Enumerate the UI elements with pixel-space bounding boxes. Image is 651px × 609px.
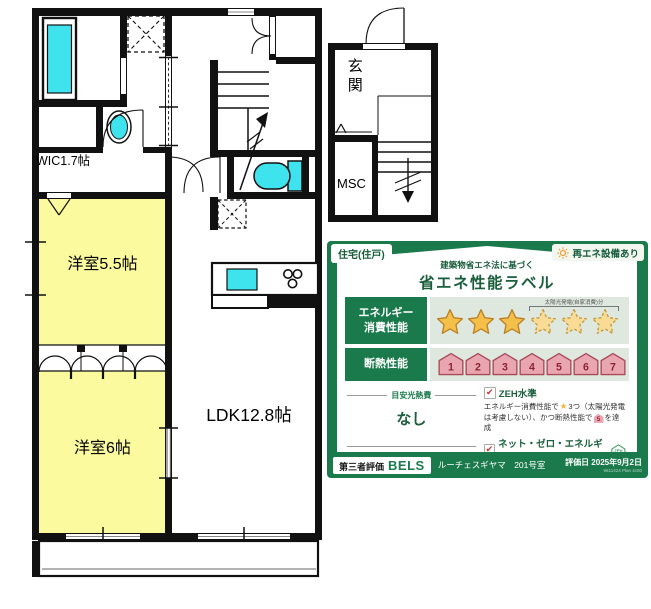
kitchen-sink-icon	[227, 269, 257, 290]
bedroom2-label: 洋室6帖	[39, 441, 166, 458]
energy-consumption-row: エネルギー 消費性能 太陽光発電(自家消費)分	[345, 297, 629, 344]
insulation-house-icon: 2	[465, 352, 491, 376]
bedroom1-label: 洋室5.5帖	[39, 257, 166, 274]
msc-label: MSC	[337, 177, 366, 191]
star-icon: ★	[559, 401, 569, 411]
energy-label-panel: 住宅(住戸) 再エネ設備あり 建築物省エネ法に基づく 省エネ性能ラベル エネルギ…	[327, 241, 648, 478]
cert-label: 第三者評価	[339, 460, 384, 473]
label-footer: 第三者評価 BELS ルーチェスギヤマ 201号室 評価日 2025年9月2日 …	[327, 452, 648, 478]
balcony	[39, 541, 318, 576]
ldk-dashed-icon	[218, 200, 246, 228]
insulation-label: 断熱性能	[345, 348, 427, 381]
renewable-badge-label: 再エネ設備あり	[572, 246, 639, 260]
energy-label-line1: エネルギー	[359, 306, 414, 320]
zeh-desc: エネルギー消費性能で★3つ（太陽光発電は考慮しない）、かつ断熱性能で5を達成	[484, 401, 627, 434]
double-door-icon	[252, 18, 271, 54]
entrance-door-icon	[366, 8, 404, 44]
step-marks	[335, 124, 372, 133]
cost-value: なし	[347, 408, 476, 429]
solar-note-bracket: 太陽光発電(自家消費)分	[529, 298, 619, 311]
insulation-house-icon: 1	[438, 352, 464, 376]
ldk-label: LDK12.8帖	[176, 406, 322, 424]
star-icon	[591, 308, 619, 335]
bels-badge: 第三者評価 BELS	[333, 457, 431, 474]
toilet-icon	[184, 157, 302, 193]
insulation-level-icon: 5	[594, 414, 604, 423]
star-icon	[498, 308, 526, 335]
energy-consumption-label: エネルギー 消費性能	[345, 297, 427, 344]
renewable-badge: 再エネ設備あり	[552, 244, 644, 261]
solar-note: 太陽光発電(自家消費)分	[529, 298, 619, 306]
label-title: 省エネ性能ラベル	[337, 271, 637, 293]
svg-text:6: 6	[583, 361, 589, 373]
divider	[347, 395, 387, 396]
closet-dashed-icon	[128, 16, 164, 52]
energy-stars-band: 太陽光発電(自家消費)分	[430, 297, 629, 344]
insulation-house-icon: 7	[600, 352, 626, 376]
energy-label-line2: 消費性能	[364, 321, 408, 335]
eval-date: 評価日 2025年9月2日	[565, 457, 642, 468]
bracket-line	[529, 306, 619, 311]
cost-title: 目安光熱費	[391, 390, 431, 401]
star-icon	[560, 308, 588, 335]
zeh-heading: ZEH水準	[499, 386, 537, 400]
svg-text:7: 7	[610, 361, 616, 373]
cert-code: 9611424 Plan 4c00	[565, 468, 642, 473]
cert-brand: BELS	[388, 458, 425, 473]
wic-label: WIC1.7帖	[36, 155, 90, 168]
label-card: 建築物省エネ法に基づく 省エネ性能ラベル エネルギー 消費性能 太陽光発電(自家…	[337, 246, 637, 452]
insulation-house-icon: 5	[546, 352, 572, 376]
svg-text:1: 1	[448, 361, 454, 373]
star-icon	[436, 308, 464, 335]
zeh-desc-part1: エネルギー消費性能で	[484, 402, 559, 411]
svg-text:4: 4	[529, 361, 535, 373]
floorplan-page: WIC1.7帖 洋室5.5帖 洋室6帖 LDK12.8帖 玄関 MSC 住宅(住…	[0, 0, 651, 609]
bathtub-icon	[43, 18, 76, 100]
star-icon	[467, 308, 495, 335]
entrance-label: 玄関	[346, 58, 362, 96]
insulation-row: 断熱性能 1234567	[345, 348, 629, 381]
star-icon	[529, 308, 557, 335]
insulation-band: 1234567	[430, 348, 629, 381]
insulation-scale: 1234567	[430, 348, 629, 376]
property-name: ルーチェスギヤマ 201号室	[438, 459, 546, 471]
building-type-badge: 住宅(住戸)	[331, 244, 392, 263]
stairs-entrance	[378, 96, 431, 203]
svg-text:3: 3	[502, 361, 508, 373]
check-icon: ✔	[484, 387, 496, 399]
insulation-house-icon: 6	[573, 352, 599, 376]
divider	[435, 395, 475, 396]
divider	[347, 446, 476, 447]
sun-icon	[557, 247, 569, 259]
washbasin-icon	[103, 110, 143, 147]
insulation-house-icon: 3	[492, 352, 518, 376]
svg-text:5: 5	[556, 361, 562, 373]
svg-text:2: 2	[475, 361, 481, 373]
insulation-house-icon: 4	[519, 352, 545, 376]
